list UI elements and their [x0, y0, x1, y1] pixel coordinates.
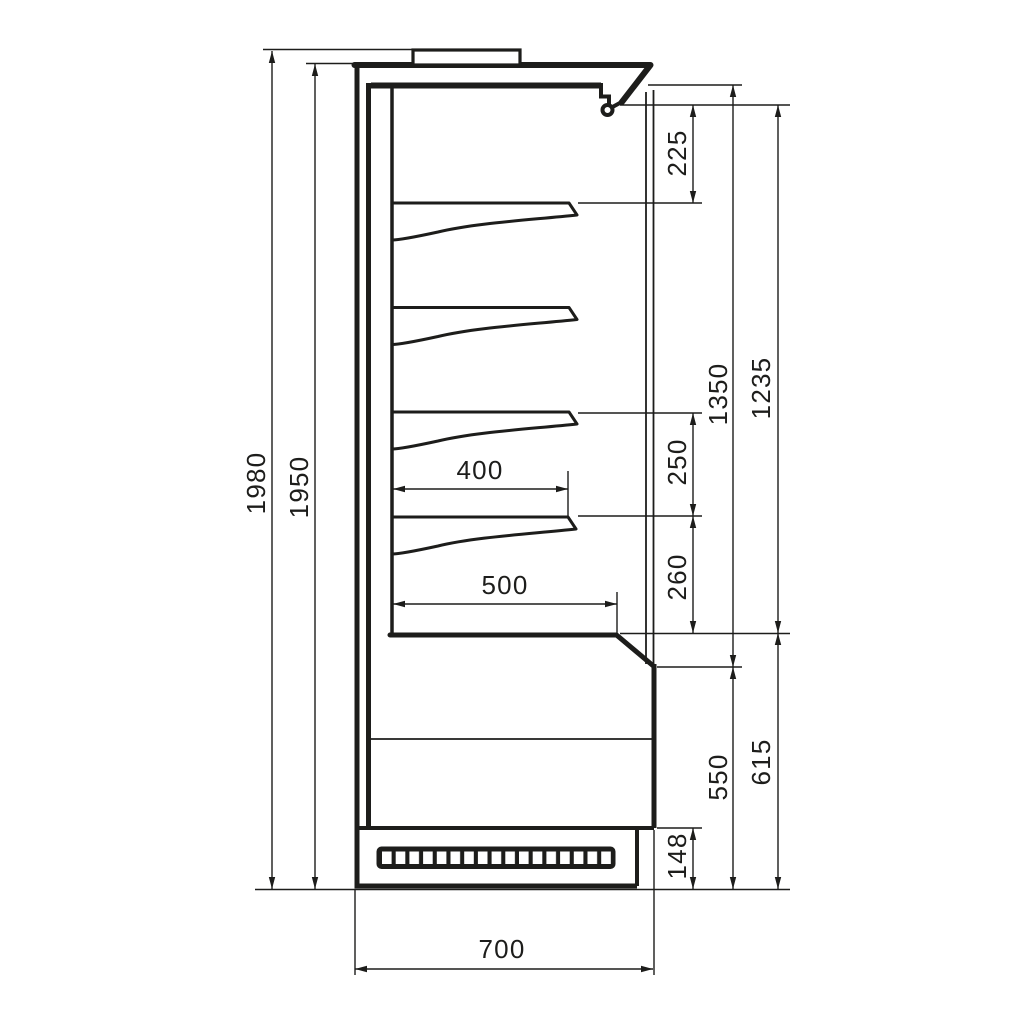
drawing-background	[0, 0, 1024, 1024]
dim-shelf-to-deck-label: 260	[662, 554, 692, 601]
dim-plinth-label: 148	[662, 833, 692, 880]
dim-opening-height-label: 1235	[746, 357, 776, 420]
dim-base-front-label: 550	[703, 754, 733, 801]
top-box	[413, 50, 520, 65]
dim-overall-height-label: 1980	[241, 452, 271, 515]
dim-deck-depth-label: 500	[482, 570, 529, 600]
ventilation-grille-slots	[380, 850, 613, 866]
dim-shelf-depth-label: 400	[457, 455, 504, 485]
dim-body-height-label: 1950	[284, 456, 314, 519]
dim-shelf-spacing-label: 250	[662, 439, 692, 486]
technical-drawing-canvas: 1980 1950 225 1350 1235 250 260 550 615 …	[0, 0, 1024, 1024]
dim-base-total-label: 615	[746, 739, 776, 786]
dim-canopy-to-shelf-label: 225	[662, 130, 692, 177]
dim-overall-depth-label: 700	[479, 934, 526, 964]
cabinet-side-section-drawing: 1980 1950 225 1350 1235 250 260 550 615 …	[0, 0, 1024, 1024]
dim-interior-height-label: 1350	[703, 363, 733, 426]
